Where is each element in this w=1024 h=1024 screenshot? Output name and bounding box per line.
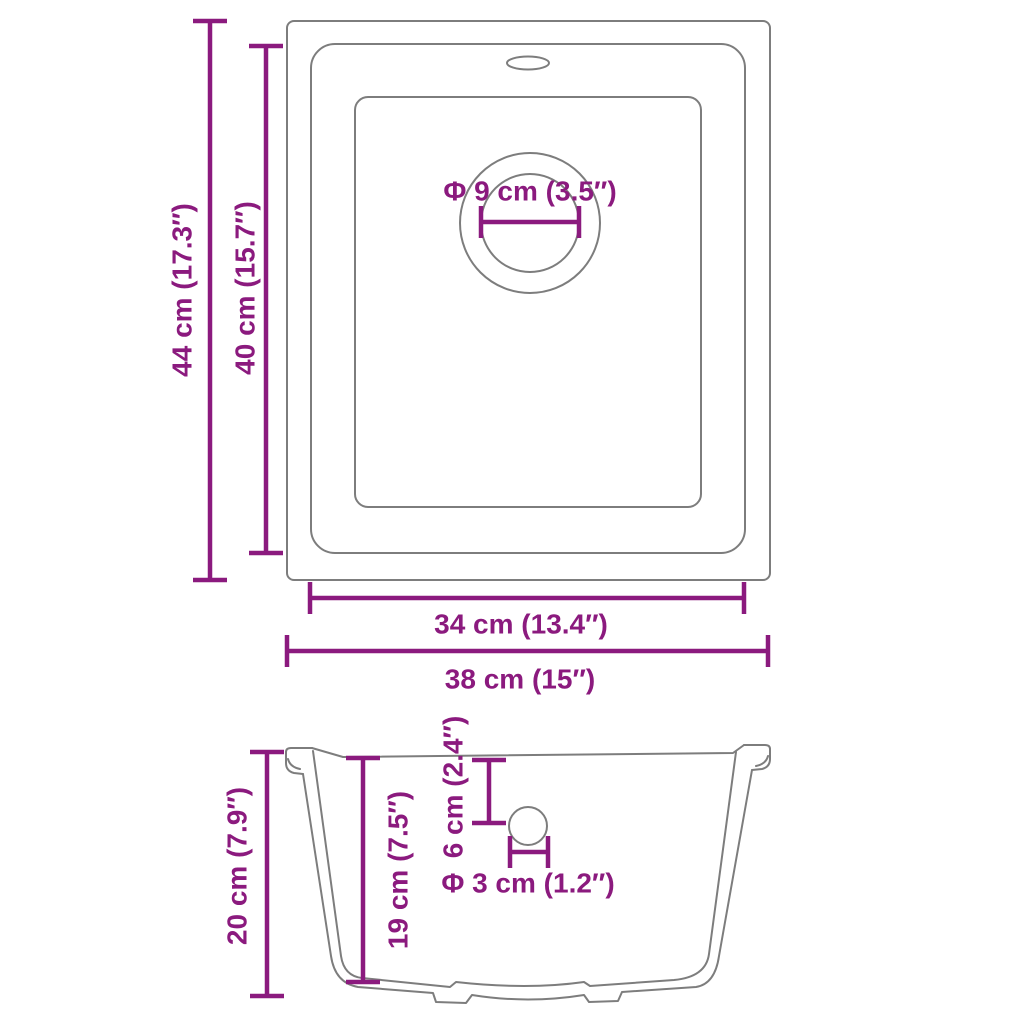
- left-rim-flange-detail: [288, 759, 300, 769]
- right-rim-flange-detail: [756, 756, 768, 766]
- dimension-label: 19 cm (7.5″): [383, 791, 414, 949]
- dimension-inner-width: 34 cm (13.4″): [310, 582, 744, 640]
- section-view: 20 cm (7.9″) 19 cm (7.5″) 6 cm (2.4″): [222, 716, 771, 1003]
- section-drain-hole: [509, 807, 547, 845]
- dimension-outer-width: 38 cm (15″): [287, 635, 768, 695]
- dimension-inner-depth: 19 cm (7.5″): [346, 758, 414, 982]
- sink-rim-edge: [311, 44, 745, 553]
- dimension-drain-diameter: Φ 9 cm (3.5″): [443, 176, 616, 239]
- left-rim-flange: [286, 748, 312, 774]
- dimension-outer-height: 44 cm (17.3″): [167, 21, 228, 580]
- sink-dimension-diagram: Φ 9 cm (3.5″) 44 cm (17.3″) 40 cm (15.7″…: [0, 0, 1024, 1024]
- faucet-hole: [507, 57, 549, 70]
- dimension-label: 34 cm (13.4″): [434, 609, 608, 640]
- sink-outer-edge: [287, 21, 770, 580]
- dimension-label: 6 cm (2.4″): [438, 716, 469, 859]
- dimension-label: Φ 3 cm (1.2″): [441, 868, 614, 899]
- sink-basin-edge: [355, 97, 701, 507]
- rim-top-edge: [312, 745, 744, 757]
- top-view: Φ 9 cm (3.5″) 44 cm (17.3″) 40 cm (15.7″…: [167, 21, 771, 695]
- dimension-label: 20 cm (7.9″): [222, 787, 253, 945]
- dimension-label: Φ 9 cm (3.5″): [443, 176, 616, 207]
- dimension-label: 40 cm (15.7″): [230, 201, 261, 375]
- dimension-outer-depth: 20 cm (7.9″): [222, 752, 285, 996]
- dimension-inner-height: 40 cm (15.7″): [230, 46, 284, 553]
- dimension-label: 38 cm (15″): [445, 664, 595, 695]
- dimension-label: 44 cm (17.3″): [167, 203, 198, 377]
- dimension-drain-offset: 6 cm (2.4″): [438, 716, 507, 859]
- diagram-canvas: Φ 9 cm (3.5″) 44 cm (17.3″) 40 cm (15.7″…: [0, 0, 1024, 1024]
